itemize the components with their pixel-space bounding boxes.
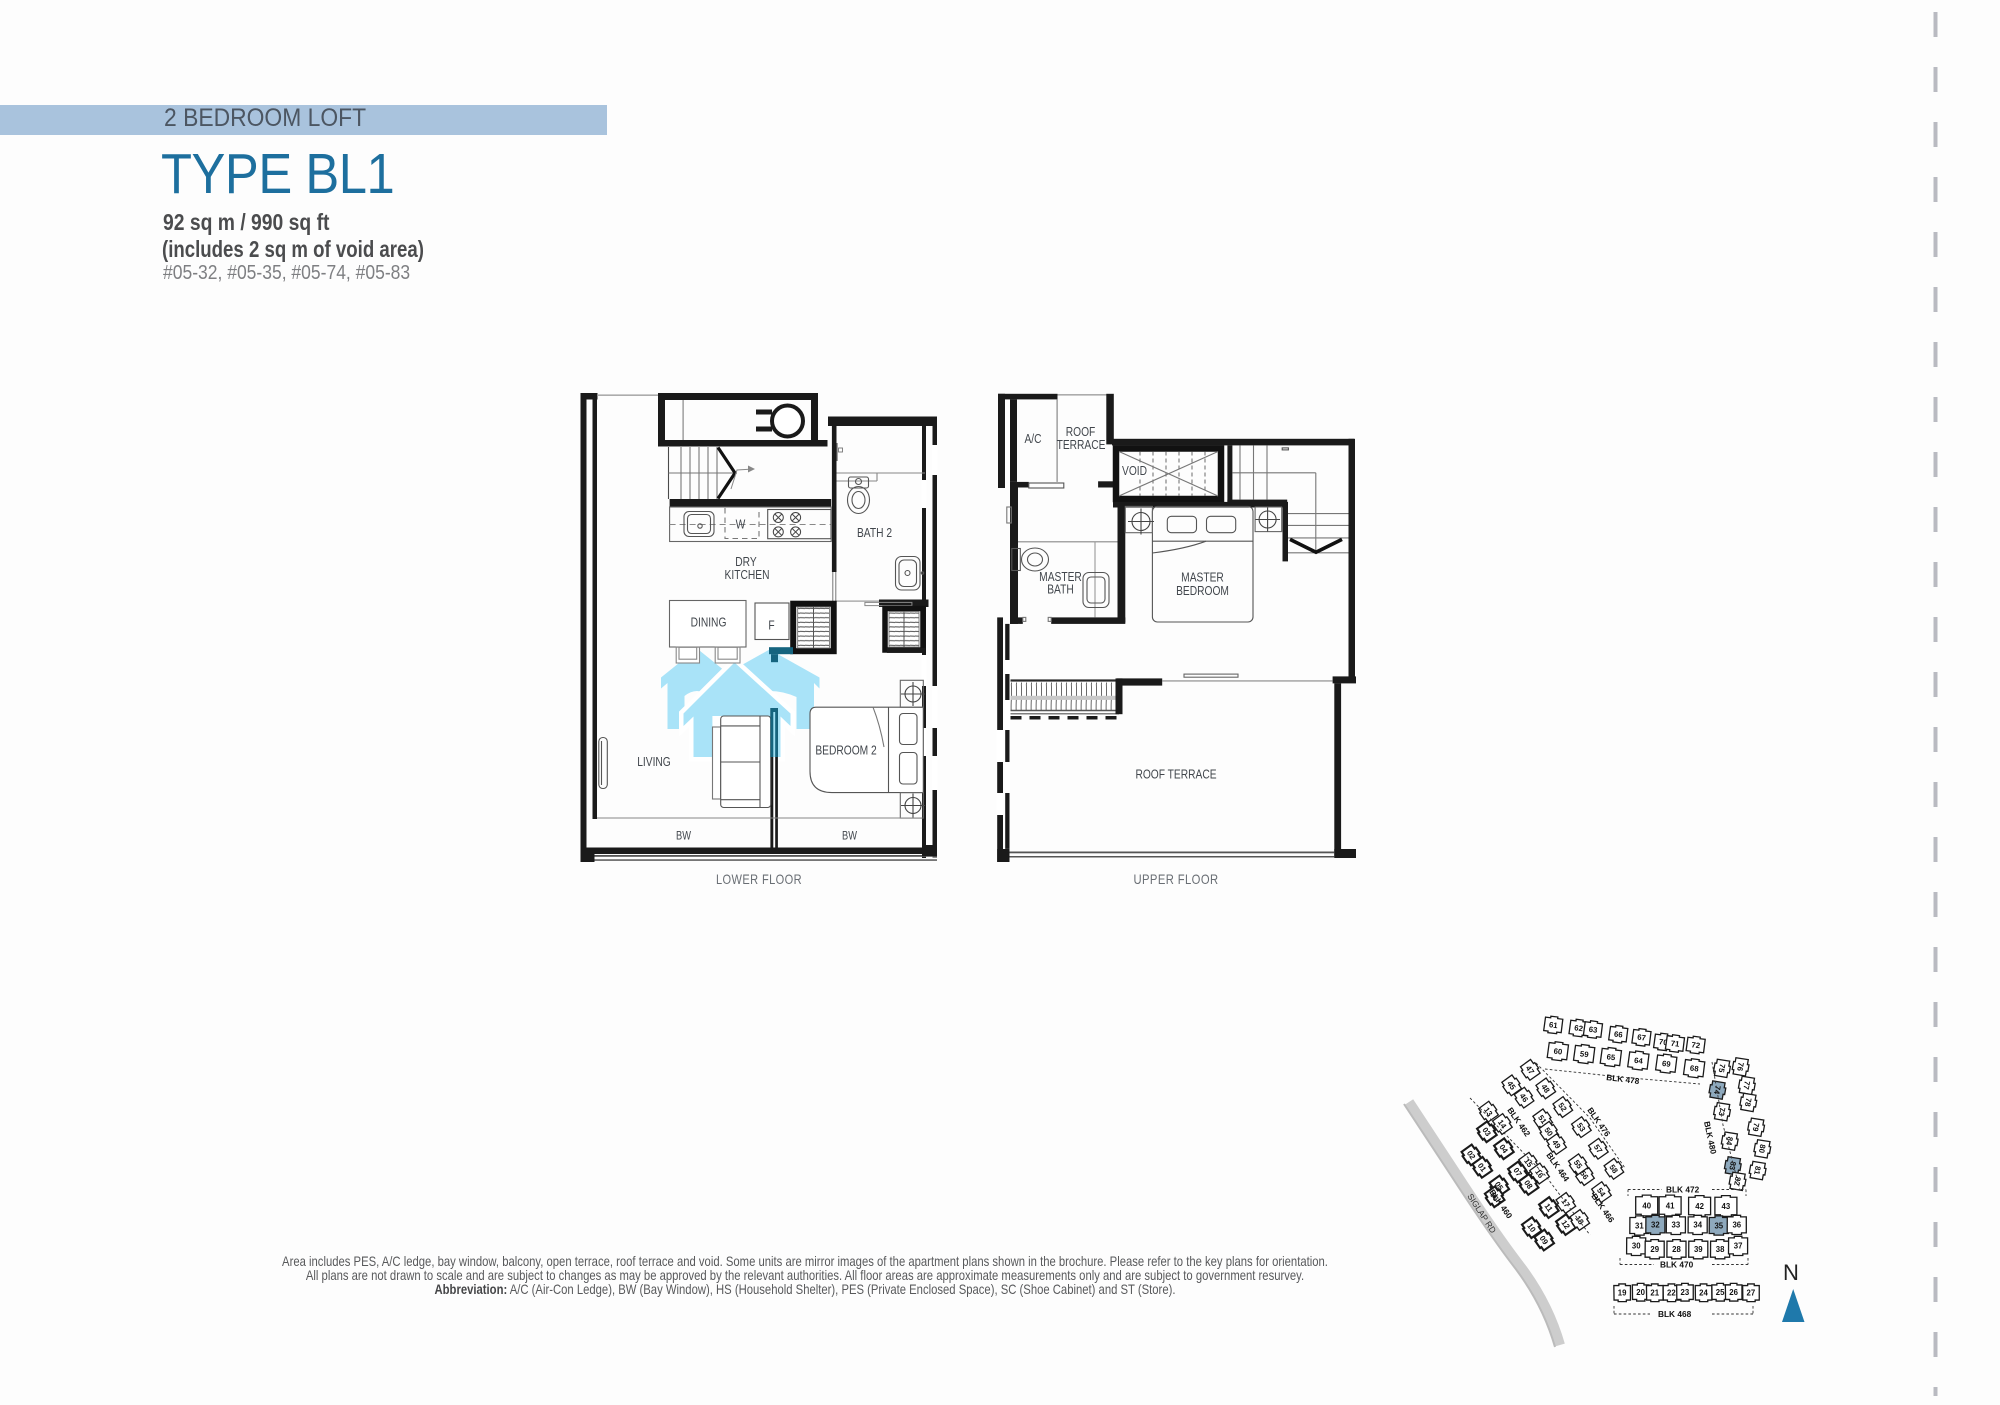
svg-text:31: 31 <box>1635 1221 1644 1230</box>
svg-text:A/C: A/C <box>1024 433 1041 446</box>
svg-text:29: 29 <box>1650 1245 1659 1254</box>
svg-text:23: 23 <box>1681 1288 1690 1297</box>
svg-text:27: 27 <box>1747 1289 1756 1298</box>
svg-text:33: 33 <box>1672 1221 1681 1230</box>
svg-text:MASTER: MASTER <box>1039 571 1082 584</box>
svg-text:67: 67 <box>1637 1033 1647 1043</box>
svg-text:35: 35 <box>1714 1221 1723 1230</box>
svg-text:32: 32 <box>1651 1221 1660 1230</box>
svg-text:39: 39 <box>1694 1245 1703 1254</box>
svg-text:BEDROOM: BEDROOM <box>1176 585 1229 598</box>
svg-text:30: 30 <box>1632 1242 1641 1251</box>
svg-text:DRY: DRY <box>735 556 757 569</box>
svg-text:25: 25 <box>1716 1288 1725 1297</box>
svg-text:28: 28 <box>1672 1245 1681 1254</box>
svg-text:BLK 472: BLK 472 <box>1666 1185 1700 1195</box>
svg-text:LIVING: LIVING <box>637 756 671 769</box>
svg-text:41: 41 <box>1666 1201 1675 1210</box>
svg-text:TERRACE: TERRACE <box>1057 439 1106 452</box>
svg-text:20: 20 <box>1636 1288 1645 1297</box>
svg-text:BEDROOM 2: BEDROOM 2 <box>815 745 876 758</box>
svg-text:W: W <box>736 519 746 532</box>
svg-text:BW: BW <box>842 830 857 843</box>
svg-text:24: 24 <box>1699 1289 1708 1298</box>
svg-text:77: 77 <box>1741 1080 1751 1090</box>
svg-text:BLK 476: BLK 476 <box>1585 1105 1612 1138</box>
svg-text:UPPER FLOOR: UPPER FLOOR <box>1134 871 1219 887</box>
svg-text:ROOF TERRACE: ROOF TERRACE <box>1135 769 1216 782</box>
svg-text:36: 36 <box>1732 1221 1741 1230</box>
svg-text:BATH: BATH <box>1047 584 1074 597</box>
svg-text:BLK 468: BLK 468 <box>1658 1309 1692 1319</box>
svg-text:ROOF: ROOF <box>1066 426 1096 439</box>
svg-text:KITCHEN: KITCHEN <box>725 569 770 582</box>
svg-text:43: 43 <box>1722 1202 1731 1211</box>
svg-text:BLK 478: BLK 478 <box>1606 1072 1641 1086</box>
svg-text:42: 42 <box>1695 1202 1704 1211</box>
svg-text:37: 37 <box>1734 1242 1743 1251</box>
svg-text:BLK 464: BLK 464 <box>1544 1150 1571 1183</box>
svg-text:21: 21 <box>1650 1289 1659 1298</box>
svg-text:19: 19 <box>1618 1289 1627 1298</box>
svg-text:38: 38 <box>1716 1245 1725 1254</box>
svg-text:MASTER: MASTER <box>1181 572 1224 585</box>
svg-text:22: 22 <box>1667 1289 1676 1298</box>
svg-text:26: 26 <box>1729 1288 1738 1297</box>
svg-text:N: N <box>1783 1260 1799 1285</box>
svg-text:BATH 2: BATH 2 <box>857 527 892 540</box>
svg-text:34: 34 <box>1693 1221 1702 1230</box>
svg-text:DINING: DINING <box>691 617 727 630</box>
svg-text:VOID: VOID <box>1122 465 1147 478</box>
svg-text:BLK 480: BLK 480 <box>1702 1120 1719 1155</box>
svg-text:LOWER FLOOR: LOWER FLOOR <box>716 871 802 887</box>
svg-text:BLK 470: BLK 470 <box>1660 1260 1694 1270</box>
svg-text:F: F <box>768 620 774 633</box>
svg-text:BW: BW <box>676 830 691 843</box>
svg-text:40: 40 <box>1642 1201 1651 1210</box>
